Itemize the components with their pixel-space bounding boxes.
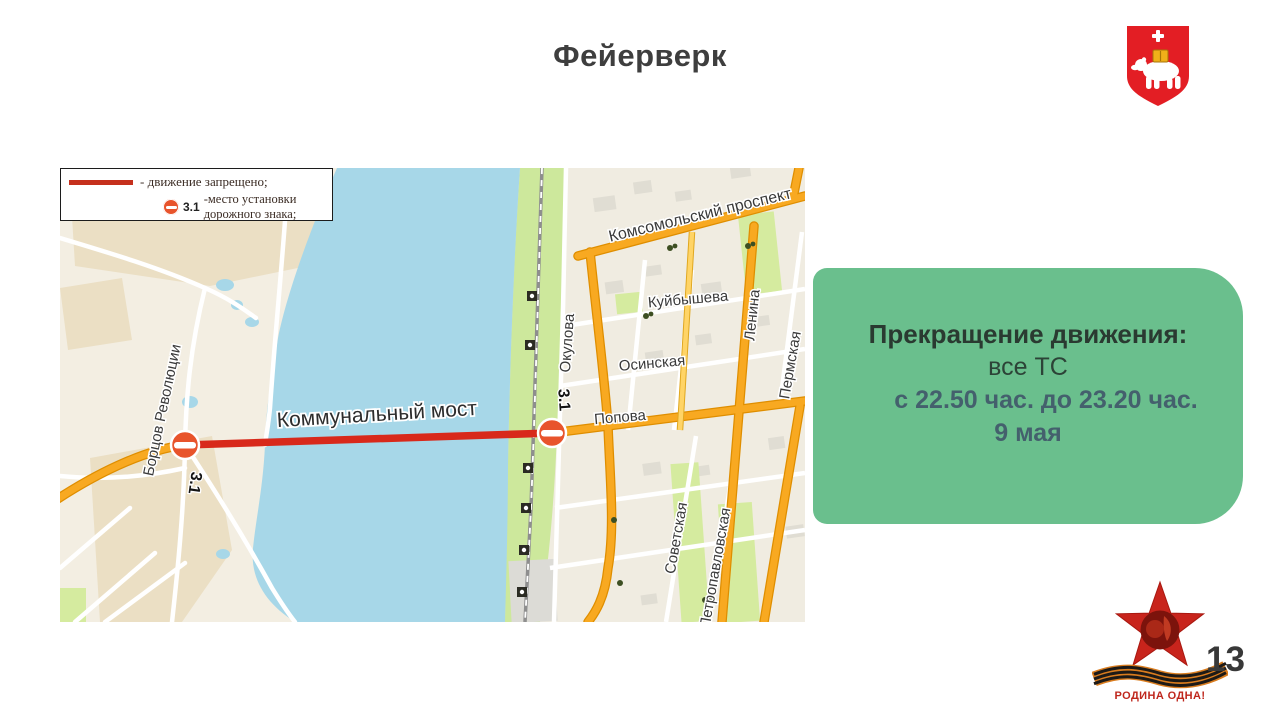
info-date: 9 мая — [813, 417, 1243, 450]
city-map: 3.1 3.1 Коммунальный мост Комсомольский … — [60, 168, 805, 622]
no-entry-sign-left-icon — [171, 431, 199, 459]
legend-no-entry-icon — [163, 199, 179, 215]
slide-title: Фейерверк — [0, 38, 1280, 74]
sign-code-right-label: 3.1 — [554, 388, 573, 411]
legend-closure-line-swatch — [69, 180, 133, 185]
perm-coat-of-arms-icon — [1124, 24, 1192, 108]
legend-sign-label: -место установки дорожного знака; — [204, 192, 332, 222]
crest-gospel-icon — [1153, 50, 1168, 62]
motto-label: РОДИНА ОДНА! — [1115, 690, 1206, 702]
sign-code-left-label: 3.1 — [185, 471, 205, 495]
legend-closure-label: - движение запрещено; — [140, 174, 268, 190]
info-time-range: с 22.50 час. до 23.20 час. — [813, 384, 1243, 417]
info-heading: Прекращение движения: — [813, 318, 1243, 351]
no-entry-sign-right-icon — [538, 419, 566, 447]
traffic-stop-info-panel: Прекращение движения: все ТС с 22.50 час… — [813, 268, 1243, 524]
map-legend: - движение запрещено; 3.1 -место установ… — [60, 168, 333, 221]
slide: Фейерверк — [0, 0, 1280, 720]
legend-sign-code: 3.1 — [183, 200, 200, 214]
info-vehicles: все ТС — [813, 351, 1243, 384]
page-number: 13 — [1206, 640, 1266, 680]
